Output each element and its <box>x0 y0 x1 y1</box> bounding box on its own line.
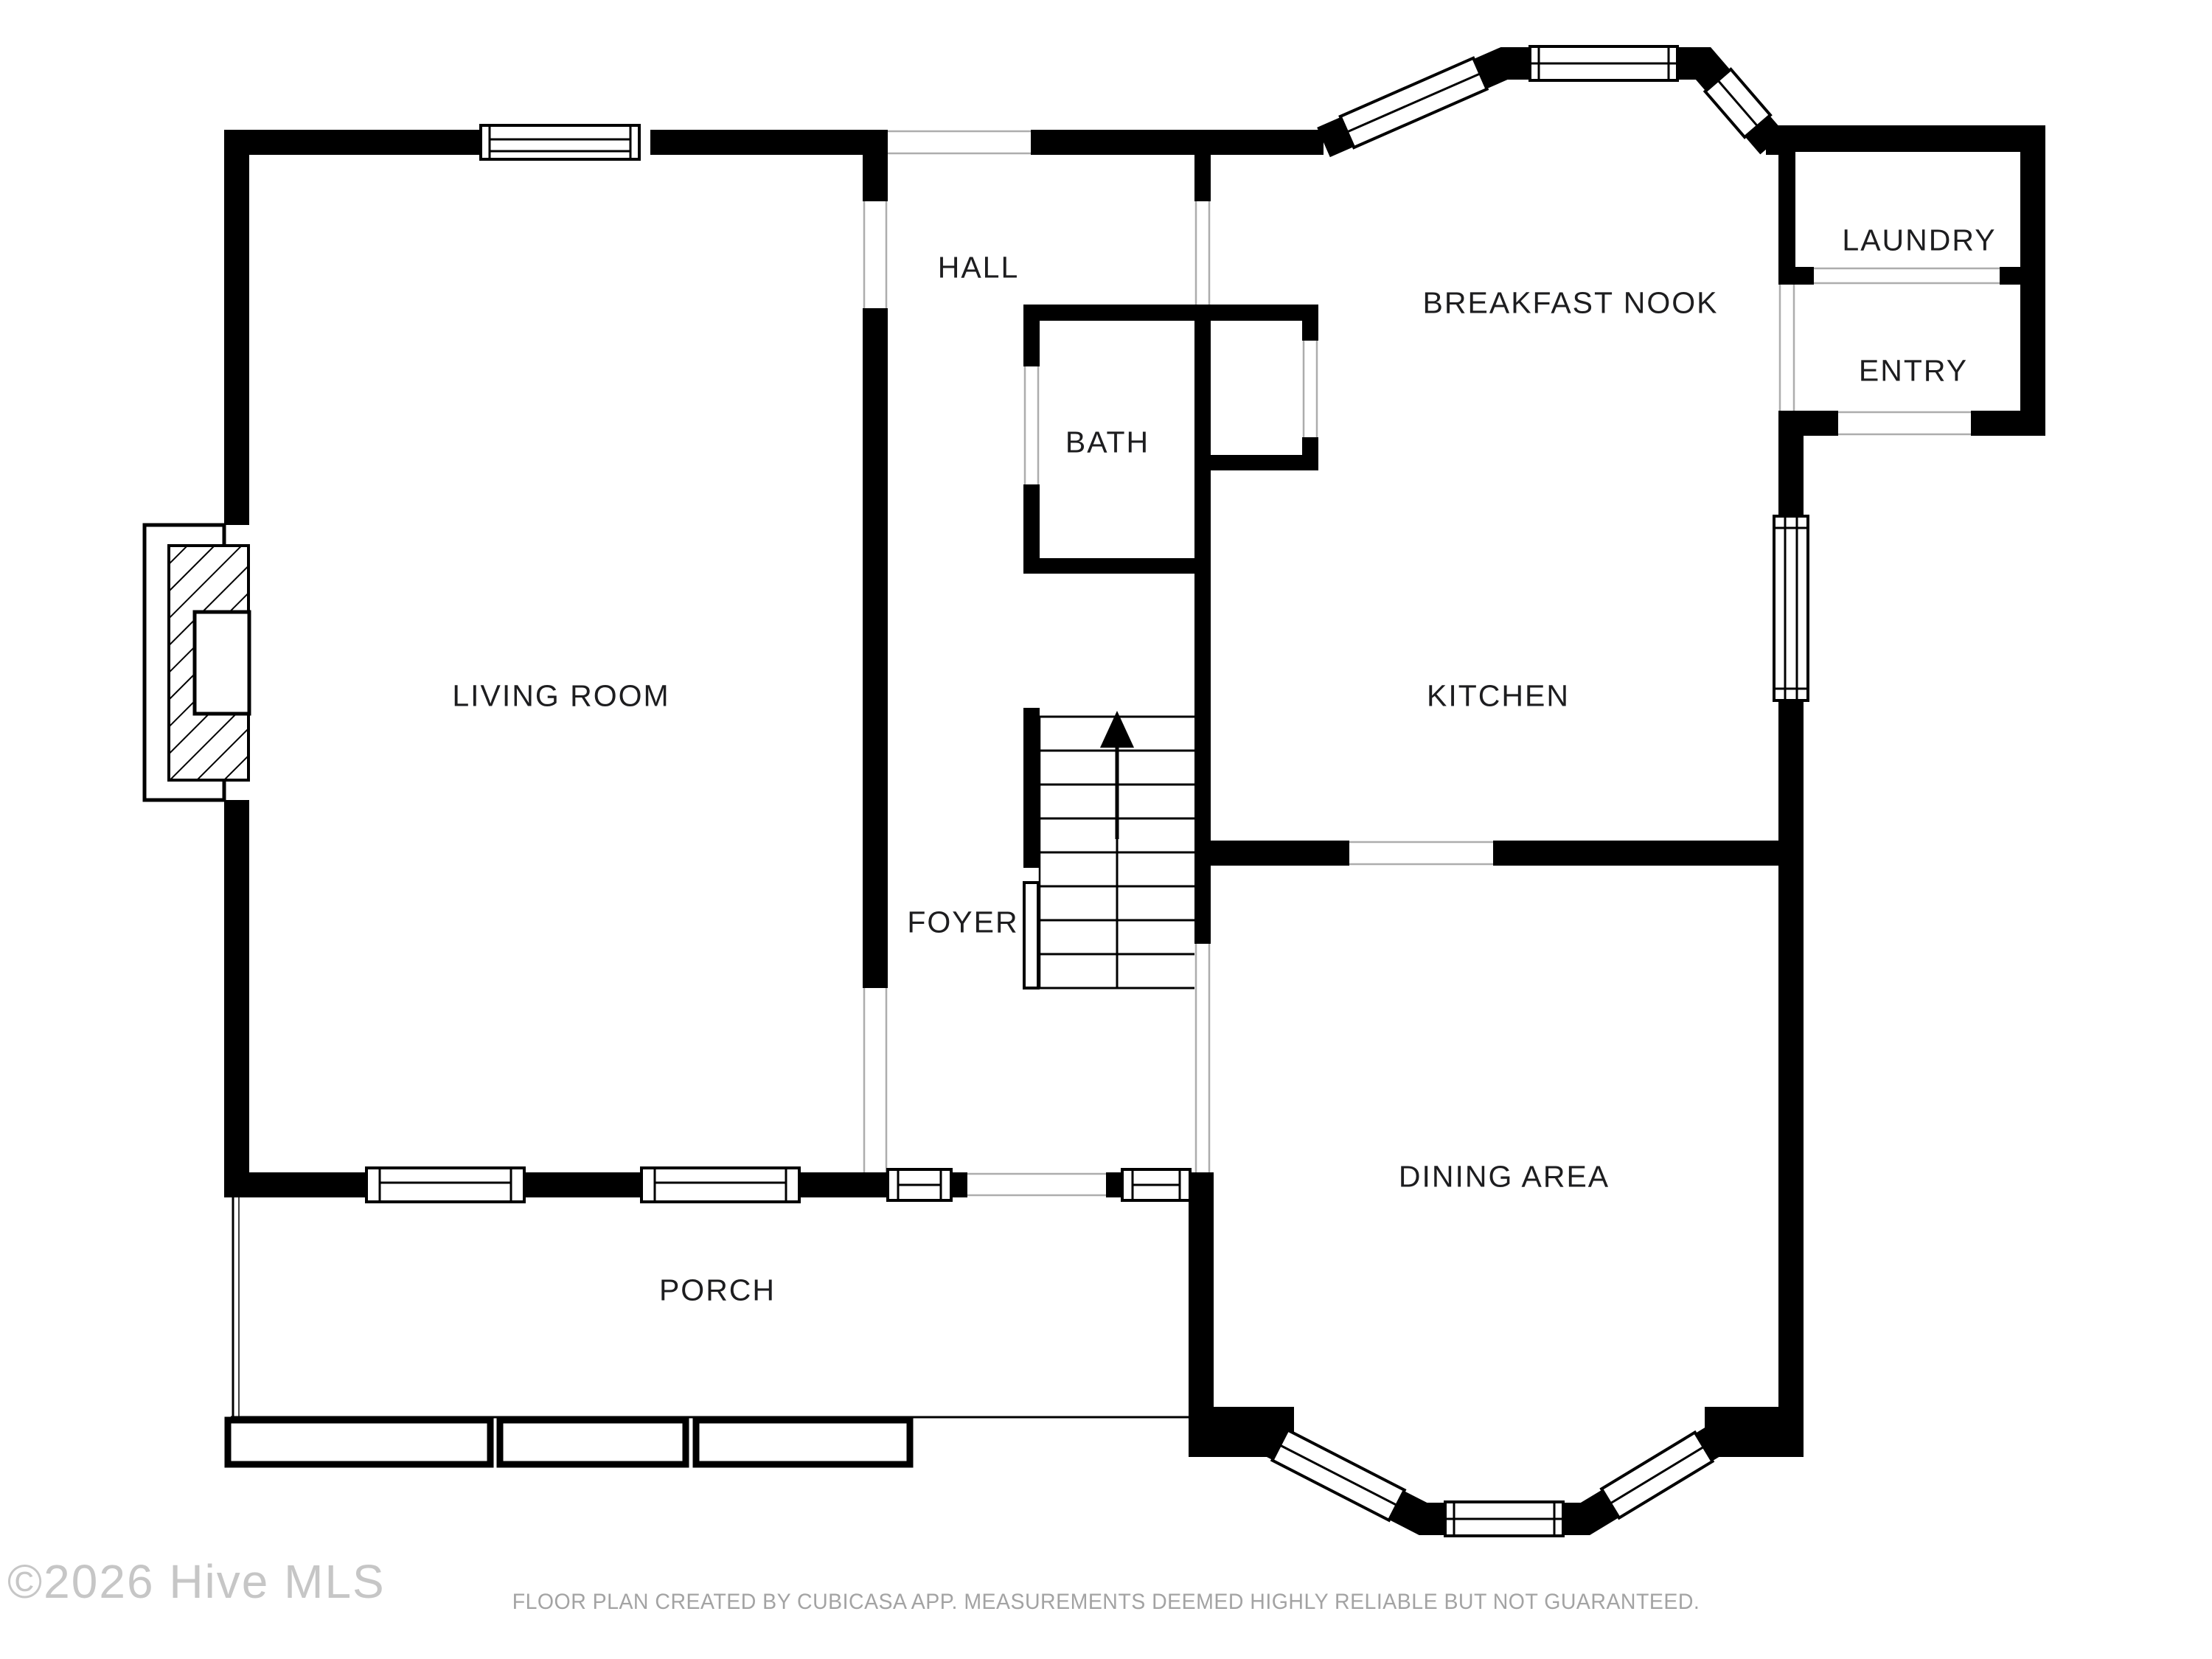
window-kitchen-right <box>1774 516 1808 700</box>
room-label-laundry: LAUNDRY <box>1842 223 1996 258</box>
window-foyer-left <box>888 1169 951 1200</box>
room-label-breakfast-nook: BREAKFAST NOOK <box>1423 286 1719 321</box>
fireplace <box>145 525 249 800</box>
stair-railing <box>1024 883 1038 988</box>
window-bottom-right <box>641 1168 799 1202</box>
room-label-foyer: FOYER <box>907 905 1018 940</box>
floor-plan: LIVING ROOM HALL BATH BREAKFAST NOOK LAU… <box>0 0 2212 1659</box>
room-label-kitchen: KITCHEN <box>1427 679 1570 714</box>
room-label-living-room: LIVING ROOM <box>452 679 669 714</box>
window-bottom-left <box>366 1168 524 1202</box>
room-label-porch: PORCH <box>659 1273 776 1308</box>
walls-layer <box>224 125 2045 1457</box>
room-label-bath: BATH <box>1065 425 1150 460</box>
staircase <box>1024 711 1194 988</box>
room-label-entry: ENTRY <box>1859 354 1968 389</box>
room-label-dining-area: DINING AREA <box>1399 1160 1610 1194</box>
window-foyer-right <box>1122 1169 1190 1200</box>
porch-structure <box>228 1197 1189 1464</box>
disclaimer-text: FLOOR PLAN CREATED BY CUBICASA APP. MEAS… <box>55 1590 2157 1615</box>
room-label-hall: HALL <box>938 251 1020 285</box>
bay-window-top <box>1324 46 1773 147</box>
window-top-living-room <box>481 125 639 159</box>
bay-window-bottom <box>1253 1430 1729 1536</box>
